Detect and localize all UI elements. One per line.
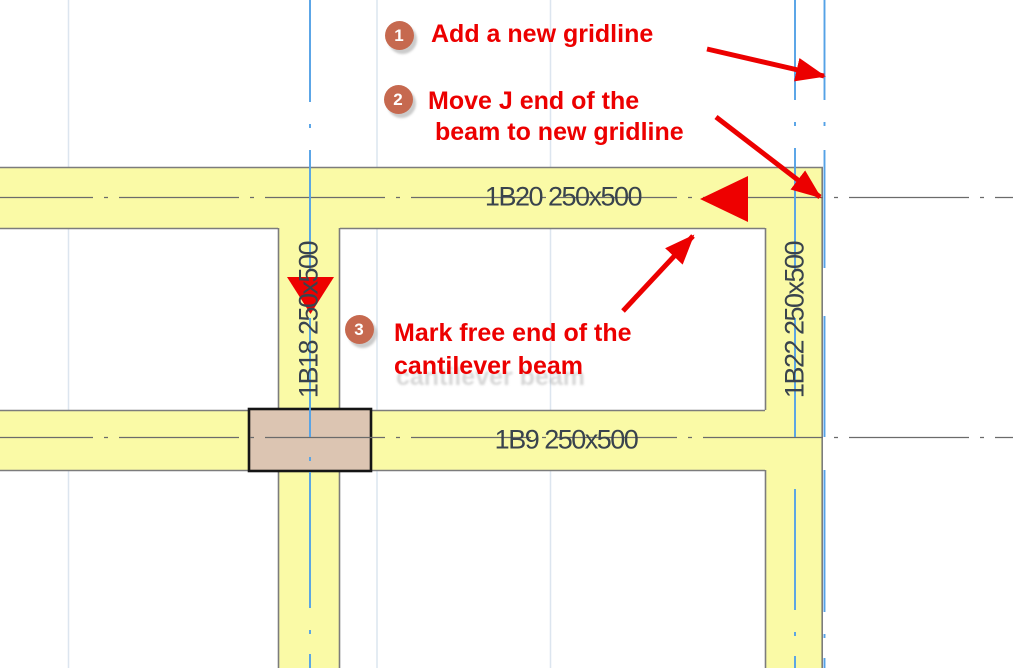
beam-label-1B9: 1B9 250x500: [495, 427, 638, 454]
beam-label-1B20: 1B20 250x500: [485, 184, 641, 211]
step-3-text: Mark free end of the cantilever beam: [394, 317, 632, 383]
step-2-text: Move J end of the beam to new gridline: [428, 86, 684, 148]
step-3-number: 3: [354, 321, 363, 338]
step-3-line-2: cantilever beam: [394, 350, 632, 383]
step-2-number: 2: [393, 91, 402, 108]
arrow-step3: [623, 236, 693, 311]
step-3-line-1: Mark free end of the: [394, 317, 632, 350]
step-2-badge: 2: [384, 85, 413, 114]
step-2-line-1: Move J end of the: [428, 86, 684, 117]
step-1-text: Add a new gridline: [431, 22, 653, 47]
arrow-step1: [707, 49, 824, 76]
step-1-line-1: Add a new gridline: [431, 22, 653, 47]
structural-plan-canvas: 1B20 250x500 1B9 250x500 1B18 250x500 1B…: [0, 0, 1013, 668]
beams: [0, 167, 823, 668]
step-1-number: 1: [394, 27, 403, 44]
step-1-badge: 1: [385, 21, 414, 50]
beam-1B9[interactable]: [0, 410, 823, 470]
step-3-badge: 3: [345, 315, 374, 344]
step-2-line-2: beam to new gridline: [428, 117, 684, 148]
beam-label-1B22: 1B22 250x500: [782, 242, 809, 398]
beam-label-1B18: 1B18 250x500: [296, 242, 323, 398]
